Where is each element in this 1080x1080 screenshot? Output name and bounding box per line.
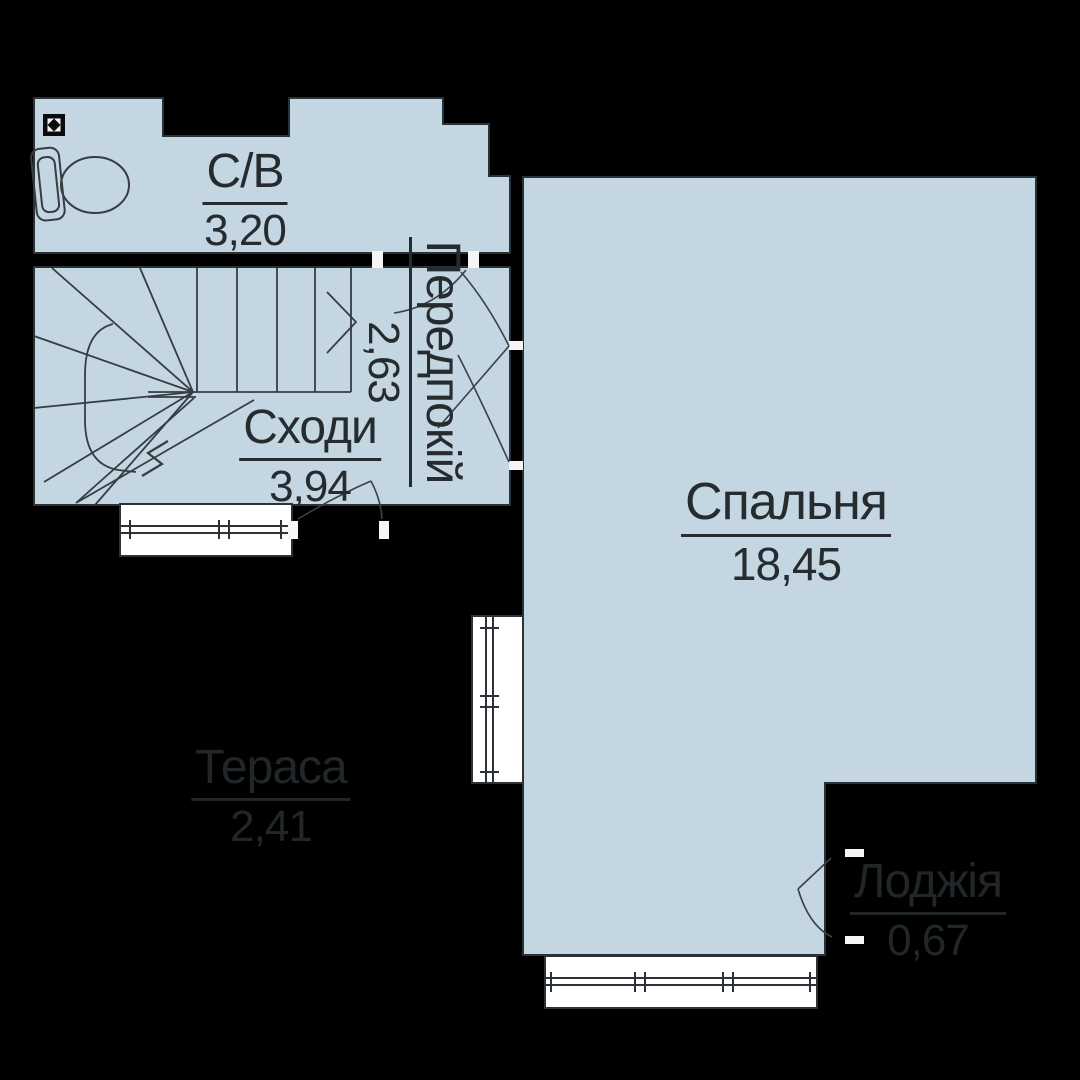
ventilation-shaft-icon [43,114,65,136]
jamb-bedroom-top [509,341,523,350]
jamb-bathroom-left [372,251,383,268]
bathroom-area [34,98,510,253]
jamb-terrace-right [379,521,389,539]
floor-plan-drawing [0,0,1080,1080]
jamb-bedroom-bottom [509,461,523,470]
bedroom-area [523,177,1036,955]
jamb-terrace-left [288,521,298,539]
jamb-loggia-top [845,849,864,857]
window-stairs-bottom [120,504,292,556]
window-bedroom-bottom [545,956,817,1008]
jamb-bathroom-right [468,251,479,268]
jamb-loggia-bottom [845,936,864,944]
floor-plan-canvas: С/В 3,20 Сходи 3,94 Передпокій 2,63 Спал… [0,0,1080,1080]
window-bedroom-left [472,616,523,783]
stairs-hallway-area [34,267,510,505]
